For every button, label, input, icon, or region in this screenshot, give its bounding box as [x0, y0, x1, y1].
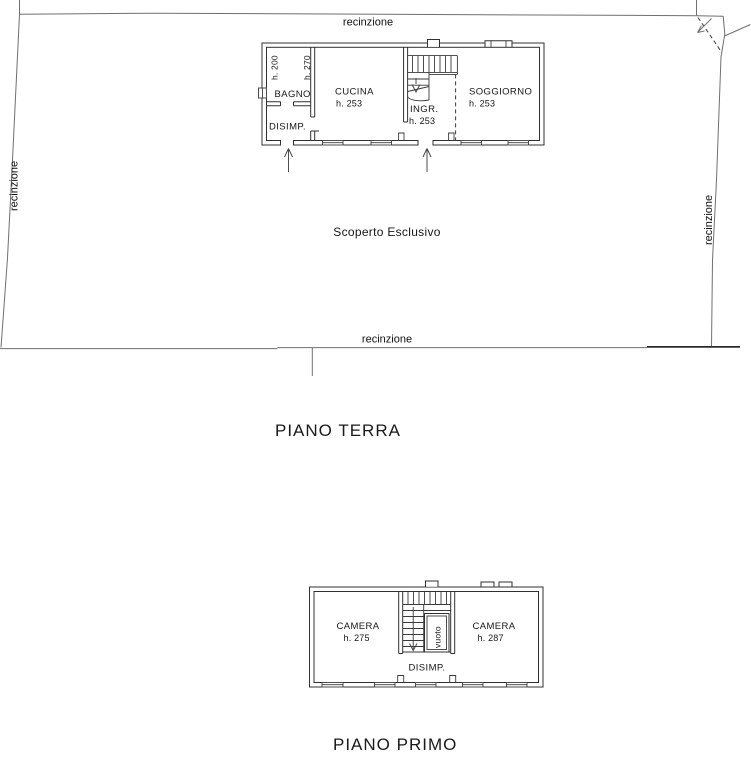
gf-door-disimp: [281, 140, 294, 146]
gf-soggiorno-height: h. 253: [469, 99, 495, 109]
ground-floor-title: PIANO TERRA: [275, 421, 401, 440]
gf-bagno-height-a: h. 200: [270, 55, 280, 80]
fence-corner-diagonal: [725, 25, 751, 37]
ff-top-bump-chimney: [426, 581, 439, 587]
ff-camera-left-height: h. 275: [344, 633, 370, 643]
floorplan-drawing: recinzione recinzione recinzione recinzi…: [0, 0, 751, 763]
site-plan: recinzione recinzione recinzione recinzi…: [0, 0, 751, 376]
ff-window-5: [506, 682, 528, 688]
gf-bagno-label: BAGNO: [275, 89, 311, 100]
first-floor-plan: CAMERA h. 275 CAMERA h. 287 vuoto DISIMP…: [310, 581, 544, 688]
gf-window-cucina-2: [371, 140, 393, 146]
gf-top-bump-right: [485, 41, 512, 48]
gf-bagno-height-b: h. 270: [302, 55, 312, 80]
gf-stair-wall: [404, 47, 408, 122]
ff-stair-wall-left: [399, 592, 403, 654]
fence-label-top: recinzione: [343, 17, 393, 29]
courtyard-label: Scoperto Esclusivo: [333, 225, 440, 239]
gf-pier-stub-left: [399, 133, 404, 141]
fence-label-left: recinzione: [9, 161, 21, 211]
gf-entrance-arrow-ingresso: [423, 149, 431, 173]
gf-cucina-height: h. 253: [336, 99, 362, 109]
ff-window-3: [415, 682, 437, 688]
gf-ingresso-label: INGR.: [410, 104, 438, 115]
gf-door-ingresso: [418, 140, 433, 146]
fence-right: [712, 16, 725, 347]
floorplan-page: recinzione recinzione recinzione recinzi…: [0, 0, 751, 763]
gf-window-soggiorno-2: [508, 140, 530, 146]
fence-corner-dashed-line: [698, 18, 722, 53]
gf-window-soggiorno-1: [461, 140, 483, 146]
gf-top-bump-chimney: [428, 40, 440, 48]
gf-soggiorno-label: SOGGIORNO: [469, 87, 532, 98]
gf-window-cucina-1: [322, 140, 344, 146]
gf-ingresso-height: h. 253: [409, 116, 435, 126]
gf-window-bagno: [259, 88, 268, 98]
fence-label-bottom: recinzione: [362, 334, 412, 346]
ff-window-4: [462, 682, 484, 688]
ff-pier-stub-right: [450, 676, 456, 683]
ff-pier-stub-left: [398, 676, 404, 683]
ff-window-2: [374, 682, 396, 688]
gf-pier-stub-right: [449, 133, 454, 141]
gf-cucina-label: CUCINA: [335, 87, 374, 98]
ff-disimp-label: DISIMP.: [409, 663, 446, 674]
ff-vuoto-label: vuoto: [433, 626, 443, 648]
ff-stairs: [403, 592, 451, 653]
ff-camera-right-height: h. 287: [478, 633, 504, 643]
ff-camera-right-label: CAMERA: [473, 621, 516, 632]
ff-window-1: [322, 682, 344, 688]
ff-camera-left-label: CAMERA: [337, 621, 380, 632]
gf-entrance-arrow-disimp: [285, 149, 293, 173]
gf-disimp-label: DISIMP.: [269, 122, 306, 133]
gf-stairs: [408, 56, 458, 101]
ff-stair-wall-right: [451, 592, 455, 654]
ff-top-bump-right-2: [499, 582, 512, 587]
ground-floor-plan: h. 200 h. 270 BAGNO DISIMP. CUCINA h. 25…: [259, 40, 545, 173]
ff-top-bump-right-1: [481, 582, 494, 587]
first-floor-title: PIANO PRIMO: [333, 735, 457, 754]
fence-label-right: recinzione: [703, 195, 715, 245]
gf-wall-bagno-disimp: [267, 101, 311, 107]
